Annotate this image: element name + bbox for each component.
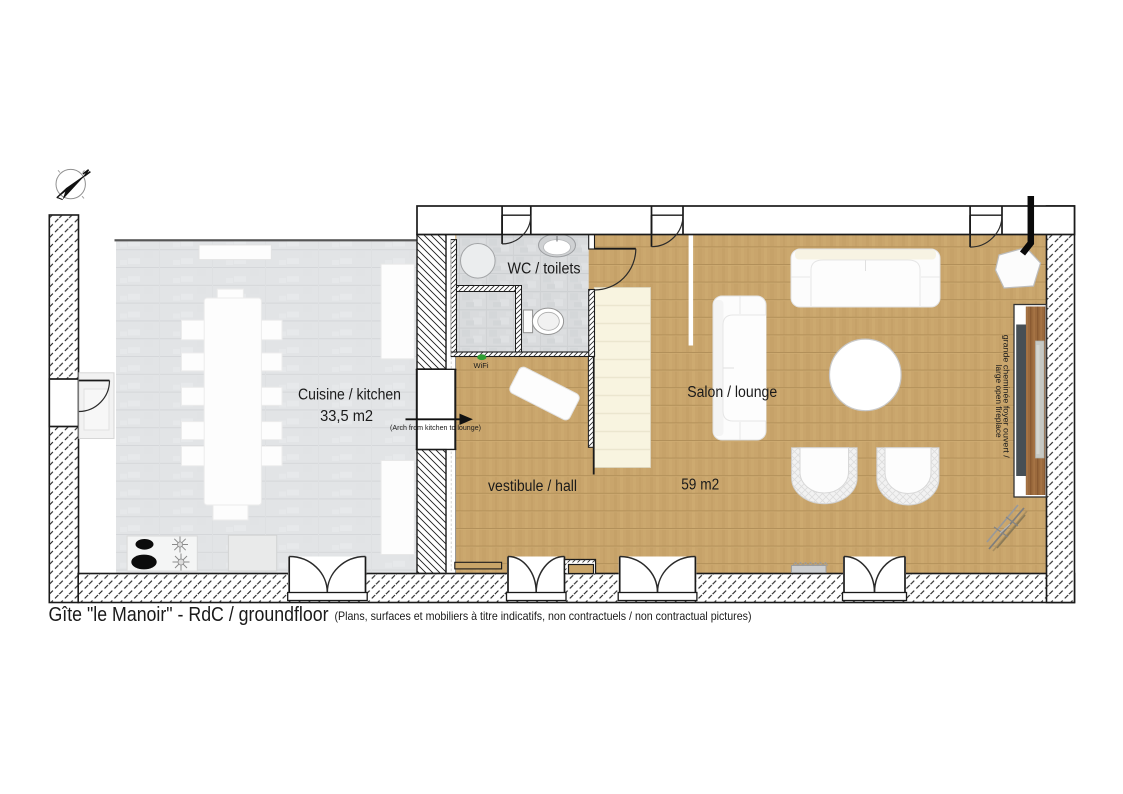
svg-text:(Plans, surfaces et mobiliers: (Plans, surfaces et mobiliers à titre in…	[335, 609, 752, 623]
svg-text:Cuisine / kitchen: Cuisine / kitchen	[298, 387, 401, 404]
svg-text:59 m2: 59 m2	[681, 477, 719, 494]
svg-text:Salon / lounge: Salon / lounge	[687, 384, 777, 401]
svg-text:vestibule / hall: vestibule / hall	[488, 478, 577, 495]
svg-text:large open fireplace: large open fireplace	[994, 365, 1003, 438]
svg-text:(Arch from kitchen to lounge): (Arch from kitchen to lounge)	[390, 423, 481, 432]
svg-text:WC / toilets: WC / toilets	[508, 261, 581, 278]
svg-text:Gîte "le Manoir" - RdC / groun: Gîte "le Manoir" - RdC / groundfloor	[49, 604, 329, 626]
svg-text:33,5 m2: 33,5 m2	[320, 408, 373, 425]
svg-text:WiFi: WiFi	[474, 361, 489, 370]
